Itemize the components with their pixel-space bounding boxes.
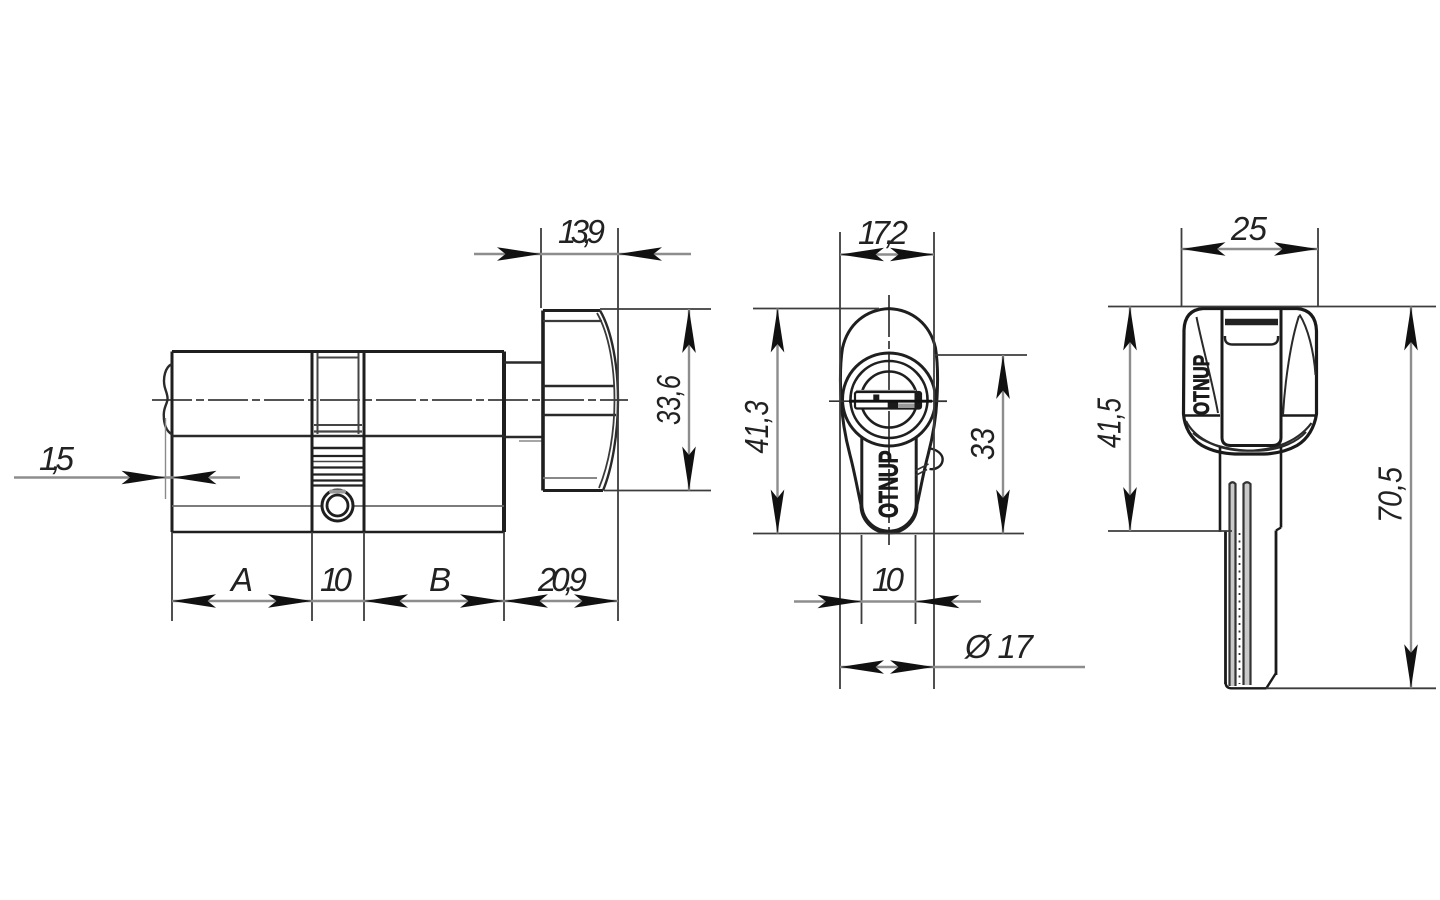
svg-text:U: U <box>873 463 903 477</box>
svg-text:P: P <box>873 450 903 463</box>
svg-text:70,5: 70,5 <box>1372 466 1409 523</box>
svg-text:33,6: 33,6 <box>650 375 687 425</box>
svg-text:B: B <box>429 561 451 598</box>
svg-text:P: P <box>1190 355 1215 366</box>
svg-text:10: 10 <box>872 561 905 598</box>
svg-text:Ø 17: Ø 17 <box>964 628 1035 665</box>
svg-text:1,5: 1,5 <box>39 440 75 477</box>
svg-text:T: T <box>873 491 903 503</box>
svg-text:20,9: 20,9 <box>537 561 587 598</box>
svg-text:U: U <box>1190 366 1215 378</box>
svg-text:33: 33 <box>964 427 1001 460</box>
svg-text:17,2: 17,2 <box>858 214 908 251</box>
svg-text:A: A <box>229 561 253 598</box>
svg-text:10: 10 <box>320 561 353 598</box>
svg-text:25: 25 <box>1230 210 1268 247</box>
svg-text:O: O <box>873 503 903 518</box>
svg-text:N: N <box>1190 378 1215 390</box>
svg-text:13,9: 13,9 <box>558 213 605 250</box>
svg-text:O: O <box>1190 402 1215 415</box>
svg-text:T: T <box>1190 391 1215 401</box>
svg-text:N: N <box>873 477 903 491</box>
svg-text:41,5: 41,5 <box>1091 398 1128 448</box>
svg-text:41,3: 41,3 <box>738 400 775 454</box>
